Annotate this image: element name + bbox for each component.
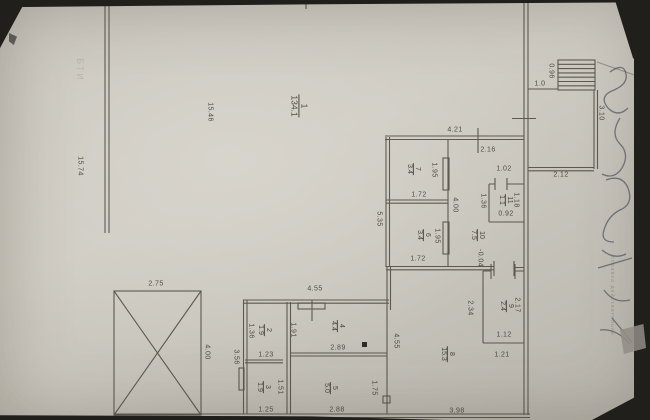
room-number: 4 [338,324,345,328]
room-number: 11 [506,196,513,203]
dimension-label: 1.18 [513,192,520,207]
room-area: 3.4 [415,229,423,241]
room-number: 7 [414,167,421,171]
room-number: 8 [448,352,455,356]
dimension-label: 3.98 [449,408,464,415]
dimension-label: 1.72 [411,192,426,199]
dimension-label: 1.25 [258,407,273,414]
dimension-label: -0.04 [477,249,484,267]
photo-edge-right [634,55,650,420]
room-number: 3 [264,385,271,389]
dimension-label: 1.0 [535,81,546,88]
dimension-label: 1.23 [258,352,273,359]
dimension-label: 1.51 [277,379,284,394]
room-number: 9 [507,304,514,308]
dimension-label: 4.55 [307,286,322,293]
room-number: 1 [300,104,309,109]
dimension-label: 15.46 [207,102,214,122]
dimension-label: 3.10 [598,105,605,120]
dimension-label: 1.36 [248,323,255,338]
room-area: 5.0 [322,382,330,394]
room-label: 92.4 [498,300,514,312]
dimension-label: 1.72 [410,256,425,263]
dimension-label: 4.00 [204,344,211,359]
dimension-label: 2.34 [467,300,474,315]
dimension-label: 2.89 [330,345,345,352]
dimension-label: 1.95 [434,228,441,243]
dimension-label: 1.12 [496,332,511,339]
dimension-label: 0.92 [498,211,513,218]
room-label: 73.4 [405,163,421,175]
room-area: 1.1 [497,194,505,206]
column-mark [362,342,367,347]
dimension-label: 2.17 [514,297,521,312]
dimension-label: 1.95 [431,162,438,177]
room-label: 44.4 [329,320,345,332]
dimension-label: 0.96 [548,63,555,78]
dimension-label: 2.12 [553,172,568,179]
room-area: 3.4 [405,163,413,175]
room-area: 4.4 [329,320,337,332]
room-number: 5 [331,386,338,390]
dimension-label: 2.16 [480,147,495,154]
room-area: 1.9 [256,324,264,336]
room-label: 1134.1 [290,94,309,117]
dimension-label: 1.36 [480,193,487,208]
room-label: 815.3 [439,346,455,362]
dimension-label: 4.00 [452,197,459,212]
dimension-label: 2.75 [148,281,163,288]
room-area: 134.1 [290,94,300,117]
room-label: 55.0 [322,382,338,394]
dimension-label: 1.21 [494,352,509,359]
dimension-label: 4.21 [447,127,462,134]
room-area: 15.3 [439,346,447,362]
dimension-label: 4.55 [393,333,400,348]
stamp-text: БТИ [75,58,85,81]
room-area: 7.5 [469,229,477,241]
dimension-label: 5.35 [376,211,383,226]
room-number: 2 [265,328,272,332]
room-label: 31.9 [255,381,271,393]
dimension-label: 1.02 [496,166,511,173]
floor-plan-photo: 4.212.161.02.121.020.921.721.724.552.751… [0,0,650,420]
room-area: 2.4 [498,300,506,312]
room-number: 10 [478,231,485,239]
dimension-label: 3.56 [233,349,240,364]
dimension-label: 2.88 [329,407,344,414]
room-area: 1.9 [255,381,263,393]
room-label: 111.1 [497,194,513,206]
room-label: 63.4 [415,229,431,241]
room-number: 6 [424,233,431,237]
margin-note-text: справка действительна [609,256,615,336]
dimension-label: 1.75 [371,380,378,395]
room-label: 107.5 [469,229,485,241]
dimension-label: 1.91 [290,322,297,337]
room-label: 21.9 [256,324,272,336]
dimension-label: 15.74 [77,156,84,176]
